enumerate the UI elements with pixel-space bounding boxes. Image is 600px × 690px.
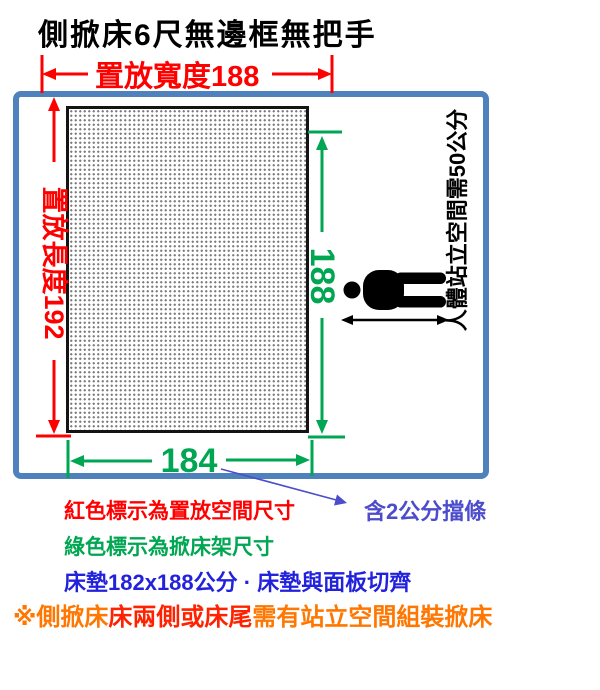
person-leg [395, 273, 446, 285]
arrow-head-left [42, 68, 56, 80]
person-head [344, 282, 361, 299]
arrow-head-down [48, 420, 60, 434]
legend-mattress-note: 床墊182x188公分 · 床墊與面板切齊 [64, 565, 411, 597]
warning-part3: 需有站立空間組裝掀床 [252, 604, 492, 631]
bed-width-label: 184 [156, 442, 222, 481]
warning-text: ※側掀床床兩側或床尾需有站立空間組裝掀床 [13, 597, 492, 632]
bumper-note-label: 含2公分擋條 [364, 494, 486, 526]
arrow-head [334, 495, 347, 506]
warning-part2: 床兩側或床尾 [108, 604, 252, 631]
person-leg [395, 296, 446, 308]
legend-red-note: 紅色標示為置放空間尺寸 [64, 495, 295, 525]
person-lying-icon [344, 270, 447, 310]
warning-part1: ※側掀床 [13, 604, 108, 631]
arrow-head-up [316, 136, 328, 150]
placement-length-label: 置放長度192 [38, 158, 70, 368]
arrow-head-up [48, 97, 60, 111]
arrow-head-left [341, 315, 353, 325]
diagram-canvas: 側掀床6尺無邊框無把手 [0, 0, 600, 690]
arrow-head-right [296, 454, 310, 466]
standing-space-arrow [341, 315, 449, 325]
arrow-head-down [316, 420, 328, 434]
bed-length-label: 188 [306, 246, 338, 306]
legend-green-note: 綠色標示為掀床架尺寸 [64, 531, 274, 561]
standing-space-label: 人體站立空間需50公分 [445, 105, 471, 335]
arrow-head-right [318, 68, 332, 80]
placement-width-label: 置放寬度188 [95, 53, 259, 95]
arrow-head-left [70, 455, 84, 467]
